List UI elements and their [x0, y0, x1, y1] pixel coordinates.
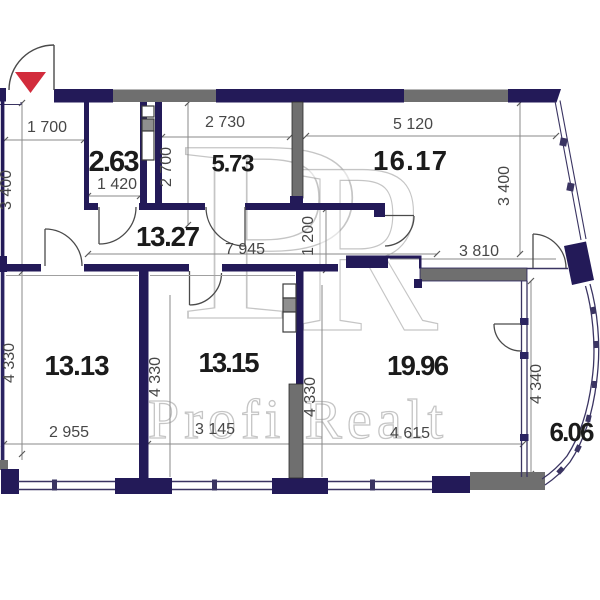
svg-text:4 330: 4 330: [302, 377, 319, 417]
svg-text:4 340: 4 340: [528, 364, 545, 404]
svg-text:2 700: 2 700: [158, 147, 175, 187]
svg-text:7 945: 7 945: [225, 241, 265, 258]
svg-text:3 145: 3 145: [195, 421, 235, 438]
svg-text:2 955: 2 955: [49, 424, 89, 441]
svg-text:1 700: 1 700: [27, 119, 67, 136]
svg-text:3 400: 3 400: [496, 166, 513, 206]
svg-text:16.17: 16.17: [373, 145, 447, 176]
svg-text:3 810: 3 810: [459, 243, 499, 260]
svg-text:2.63: 2.63: [89, 146, 140, 178]
svg-text:1 420: 1 420: [97, 176, 137, 193]
svg-text:13.15: 13.15: [199, 347, 260, 378]
svg-text:4 330: 4 330: [1, 343, 18, 383]
svg-text:4 330: 4 330: [147, 357, 164, 397]
svg-text:4 615: 4 615: [390, 425, 430, 442]
svg-text:19.96: 19.96: [387, 350, 449, 381]
svg-text:13.13: 13.13: [45, 350, 110, 381]
svg-text:6.06: 6.06: [550, 417, 595, 447]
svg-text:5 120: 5 120: [393, 116, 433, 133]
svg-text:3 400: 3 400: [0, 170, 15, 210]
svg-text:5.73: 5.73: [212, 151, 255, 178]
svg-text:13.27: 13.27: [136, 221, 200, 252]
svg-text:2 730: 2 730: [205, 114, 245, 131]
svg-text:1 200: 1 200: [300, 216, 317, 256]
